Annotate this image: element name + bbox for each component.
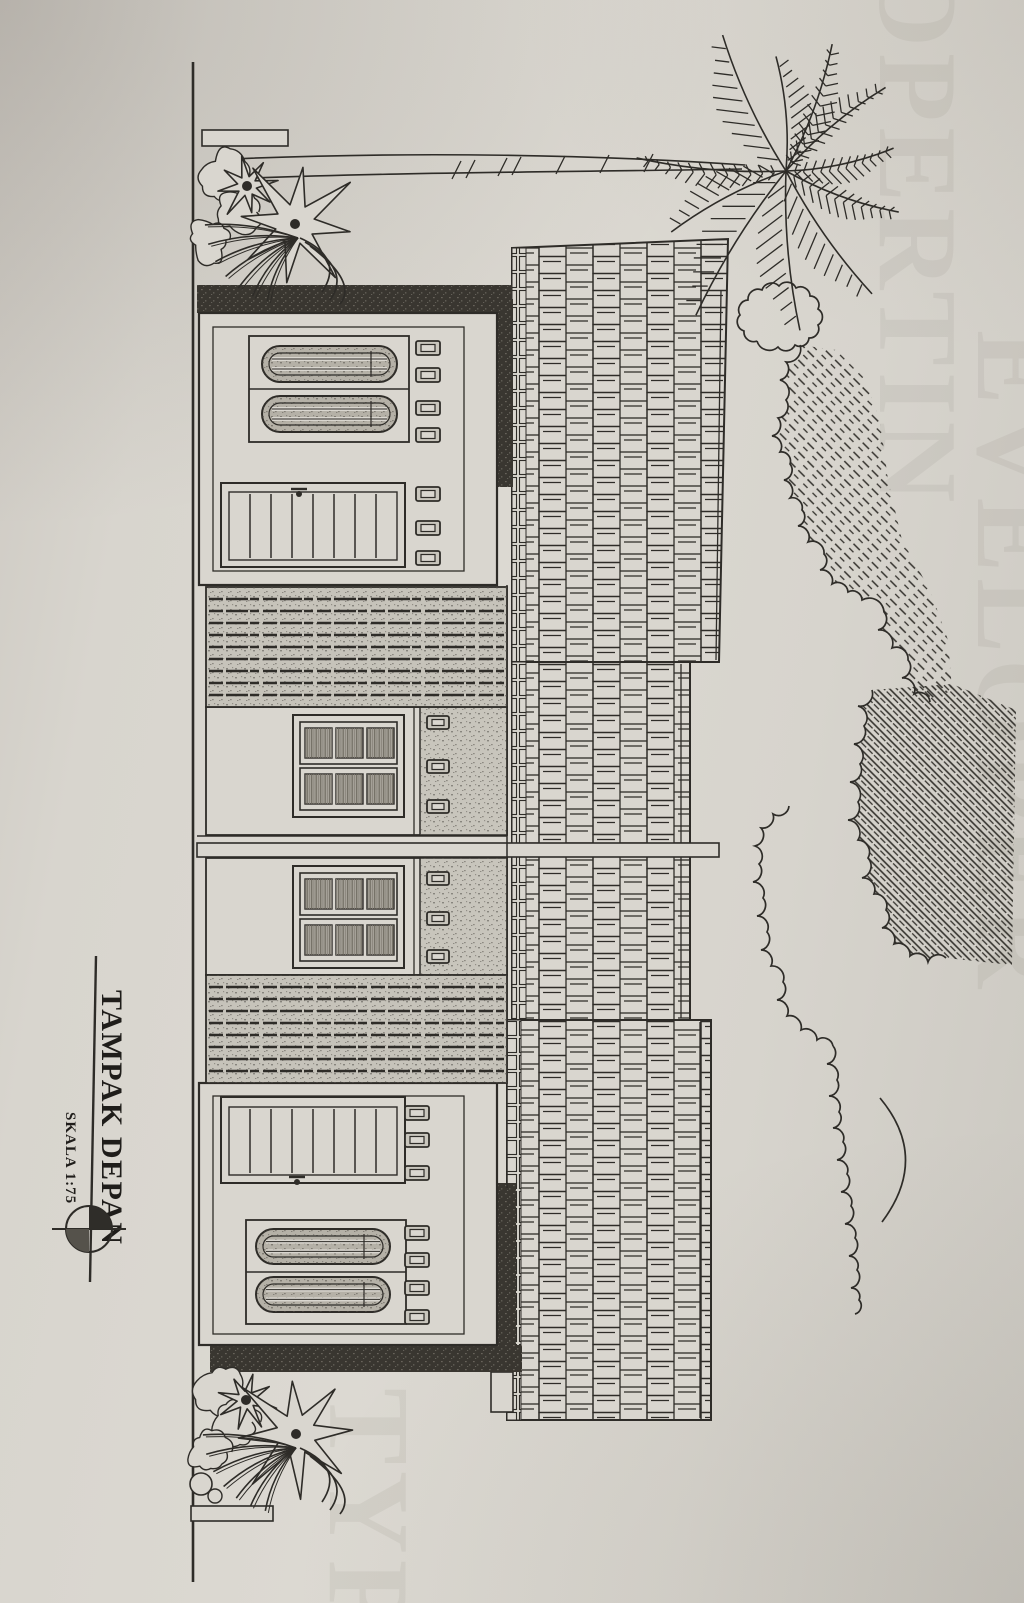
window-pane-hatch [336, 774, 363, 804]
vent-block-recess [410, 1230, 424, 1237]
palm-leaflet [712, 85, 737, 88]
vent-block-recess [410, 1314, 424, 1321]
palm-leaflet [821, 159, 826, 172]
vent-block-recess [432, 764, 444, 770]
palm-leaflet [823, 93, 838, 96]
elevation-drawing: OPERTIN EVELOPER TYPIC [0, 0, 1024, 1603]
louver-glass-texture [256, 1229, 390, 1264]
palm-leaflet [655, 165, 659, 171]
palm-leaflet [685, 172, 693, 183]
title-block: TAMPAK DEPAN SKALA 1:75 [52, 956, 128, 1282]
palm-trunk [205, 154, 745, 180]
vent-block-recess [421, 372, 435, 379]
palm-leaflet [766, 273, 786, 288]
roof-group [491, 239, 728, 1420]
palm-leaflet [744, 145, 770, 148]
window-pane-hatch [367, 728, 394, 758]
roof-top-ridge-row [512, 248, 526, 662]
door-knob [296, 491, 302, 497]
palm-leaflet [783, 70, 792, 77]
palm-leaflet [829, 64, 837, 66]
palm-leaflet [716, 109, 748, 113]
trunk-ring-mark [452, 161, 461, 179]
palm-leaflet [826, 196, 830, 214]
drawing-title: TAMPAK DEPAN [95, 990, 128, 1245]
palm-leaflet [828, 74, 837, 76]
vent-block-recess [432, 954, 444, 960]
palm-leaflet [829, 158, 834, 171]
roof-bottom-tiles [507, 1020, 711, 1420]
louver-glass-texture [262, 396, 397, 432]
palm-leaflet [723, 121, 755, 125]
trunk-ring-mark [466, 160, 475, 178]
palm-frond-rib [776, 56, 787, 171]
fascia-strip-bottom [210, 1345, 522, 1372]
palm-leaflet [813, 122, 831, 126]
shrub-fruit [208, 1489, 222, 1503]
palm-leaflet [784, 316, 795, 325]
palm-leaflet [788, 196, 797, 218]
palm-leaflet [789, 86, 804, 98]
fascia-strip-top [197, 285, 512, 313]
palm-leaflet [730, 175, 739, 188]
palm-leaflet [835, 265, 842, 282]
scanned-drawing-page: OPERTIN EVELOPER TYPIC [0, 0, 1024, 1603]
palm-leaflet [685, 200, 699, 208]
palm-leaflet [835, 199, 839, 217]
vent-block-recess [421, 432, 435, 439]
vent-block-recess [410, 1110, 424, 1117]
flower-center [290, 219, 300, 229]
cloud-outline-tail [827, 1046, 861, 1314]
palm-leaflet [810, 187, 813, 203]
palm-leaflet [812, 172, 823, 183]
window-pane-hatch [305, 774, 332, 804]
vent-block-recess [432, 720, 444, 726]
palm-leaflet [847, 275, 852, 287]
palm-leaflet [852, 205, 855, 220]
palm-leaflet [786, 78, 798, 87]
palm-leaflet [732, 133, 762, 137]
palm-leaflet [712, 47, 726, 49]
palm-leaflet [713, 97, 742, 101]
flower-center [242, 181, 252, 191]
palm-leaflet [792, 209, 803, 235]
palm-leaflet [839, 97, 841, 112]
watermark-text-3: TYPIC [305, 1388, 432, 1603]
door-knob [294, 1179, 300, 1185]
palm-leaflet [715, 60, 729, 62]
palm-leaflet [802, 182, 805, 196]
vent-block-recess [410, 1285, 424, 1292]
palm-leaflet [780, 60, 789, 67]
roof-middle-tiles [512, 662, 690, 1020]
palm-leaflet [773, 288, 789, 300]
paned-window-middle-b [293, 866, 404, 968]
louver-glass-texture [262, 346, 397, 382]
flower-center [291, 1429, 301, 1439]
vent-block-recess [410, 1257, 424, 1264]
vent-block-recess [421, 525, 435, 532]
roof-bottom-lip [491, 1372, 513, 1412]
tree-outline-small [737, 282, 822, 351]
palm-leaflet [831, 53, 839, 55]
palm-leaflet [670, 218, 680, 224]
palm-leaflet [824, 254, 833, 275]
palm-leaflet [757, 244, 783, 263]
palm-leaflet [696, 174, 705, 186]
vent-block-recess [410, 1137, 424, 1144]
ground-step-top [202, 130, 288, 146]
palm-leaflet [820, 103, 837, 107]
tree-hatch-fill-dense [848, 684, 1016, 965]
palm-leaflet [690, 191, 708, 202]
palm-leaflet [805, 233, 817, 260]
palm-leaflet [818, 191, 822, 209]
window-pane-hatch [336, 879, 363, 909]
ground-step-bottom [191, 1506, 273, 1521]
palm-leaflet [798, 221, 810, 248]
palm-leaflet [812, 161, 816, 173]
paned-window-middle-a [293, 715, 404, 817]
vent-block-recess [421, 491, 435, 498]
window-pane-hatch [305, 728, 332, 758]
palm-leaflet [714, 73, 733, 75]
vent-block-recess [421, 405, 435, 412]
window-pane-hatch [367, 774, 394, 804]
cloud-outline [753, 806, 833, 1046]
palm-leaflet [848, 94, 850, 106]
palm-leaflet [843, 202, 847, 219]
roof-middle-ridge-row [512, 662, 526, 1020]
vent-block-recess [432, 916, 444, 922]
palm-frond-rib [786, 44, 832, 171]
walls [199, 313, 507, 1345]
vent-block-recess [432, 876, 444, 882]
palm-leaflet [679, 210, 689, 216]
palm-leaflet [762, 200, 783, 216]
palm-leaflet [838, 170, 850, 182]
trunk-ring-mark [498, 158, 507, 176]
drawing-scale-label: SKALA 1:75 [62, 1112, 78, 1204]
roof-top-tiles [512, 239, 728, 662]
palm-leaflet [781, 302, 792, 311]
palm-leaflet [790, 94, 808, 108]
palm-leaflet [826, 83, 838, 86]
palm-leaflet [758, 215, 782, 233]
palm-leaflet [823, 107, 826, 125]
palm-leaflet [757, 157, 778, 160]
vent-block-recess [421, 555, 435, 562]
palm-leaflet [760, 259, 784, 277]
window-pane-hatch [305, 925, 332, 955]
vent-block-recess [432, 804, 444, 810]
vent-block-recess [421, 345, 435, 352]
window-pane-hatch [336, 728, 363, 758]
window-pane-hatch [367, 925, 394, 955]
window-pane-hatch [367, 879, 394, 909]
cloud-outline-right [880, 1098, 906, 1222]
palm-leaflet [675, 170, 682, 179]
vent-block-recess [410, 1170, 424, 1177]
palm-leaflet [814, 244, 825, 269]
palm-frond-rib [786, 171, 800, 330]
window-pane-hatch [336, 925, 363, 955]
louver-glass-texture [256, 1277, 390, 1312]
stone-band-2 [206, 975, 507, 1083]
palm-frond-rib [723, 35, 786, 171]
window-pane-hatch [305, 879, 332, 909]
